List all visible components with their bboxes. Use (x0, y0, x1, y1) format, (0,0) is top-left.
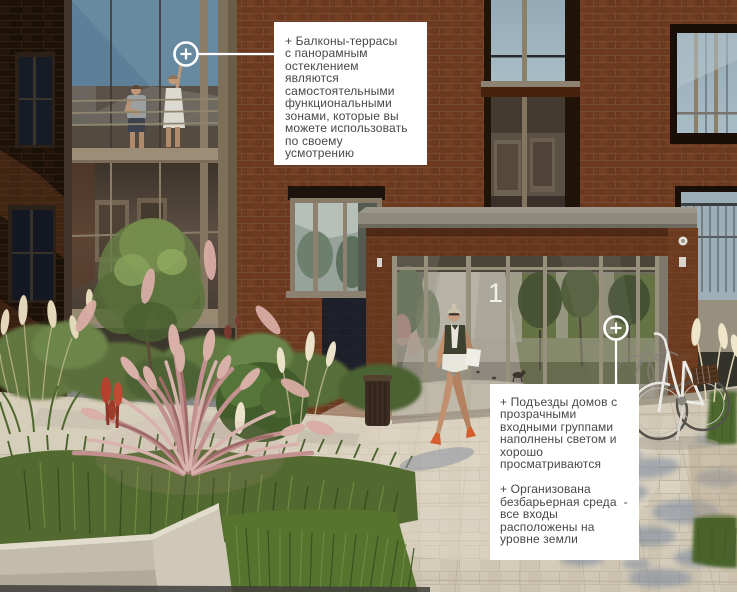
svg-text:1: 1 (488, 278, 503, 308)
